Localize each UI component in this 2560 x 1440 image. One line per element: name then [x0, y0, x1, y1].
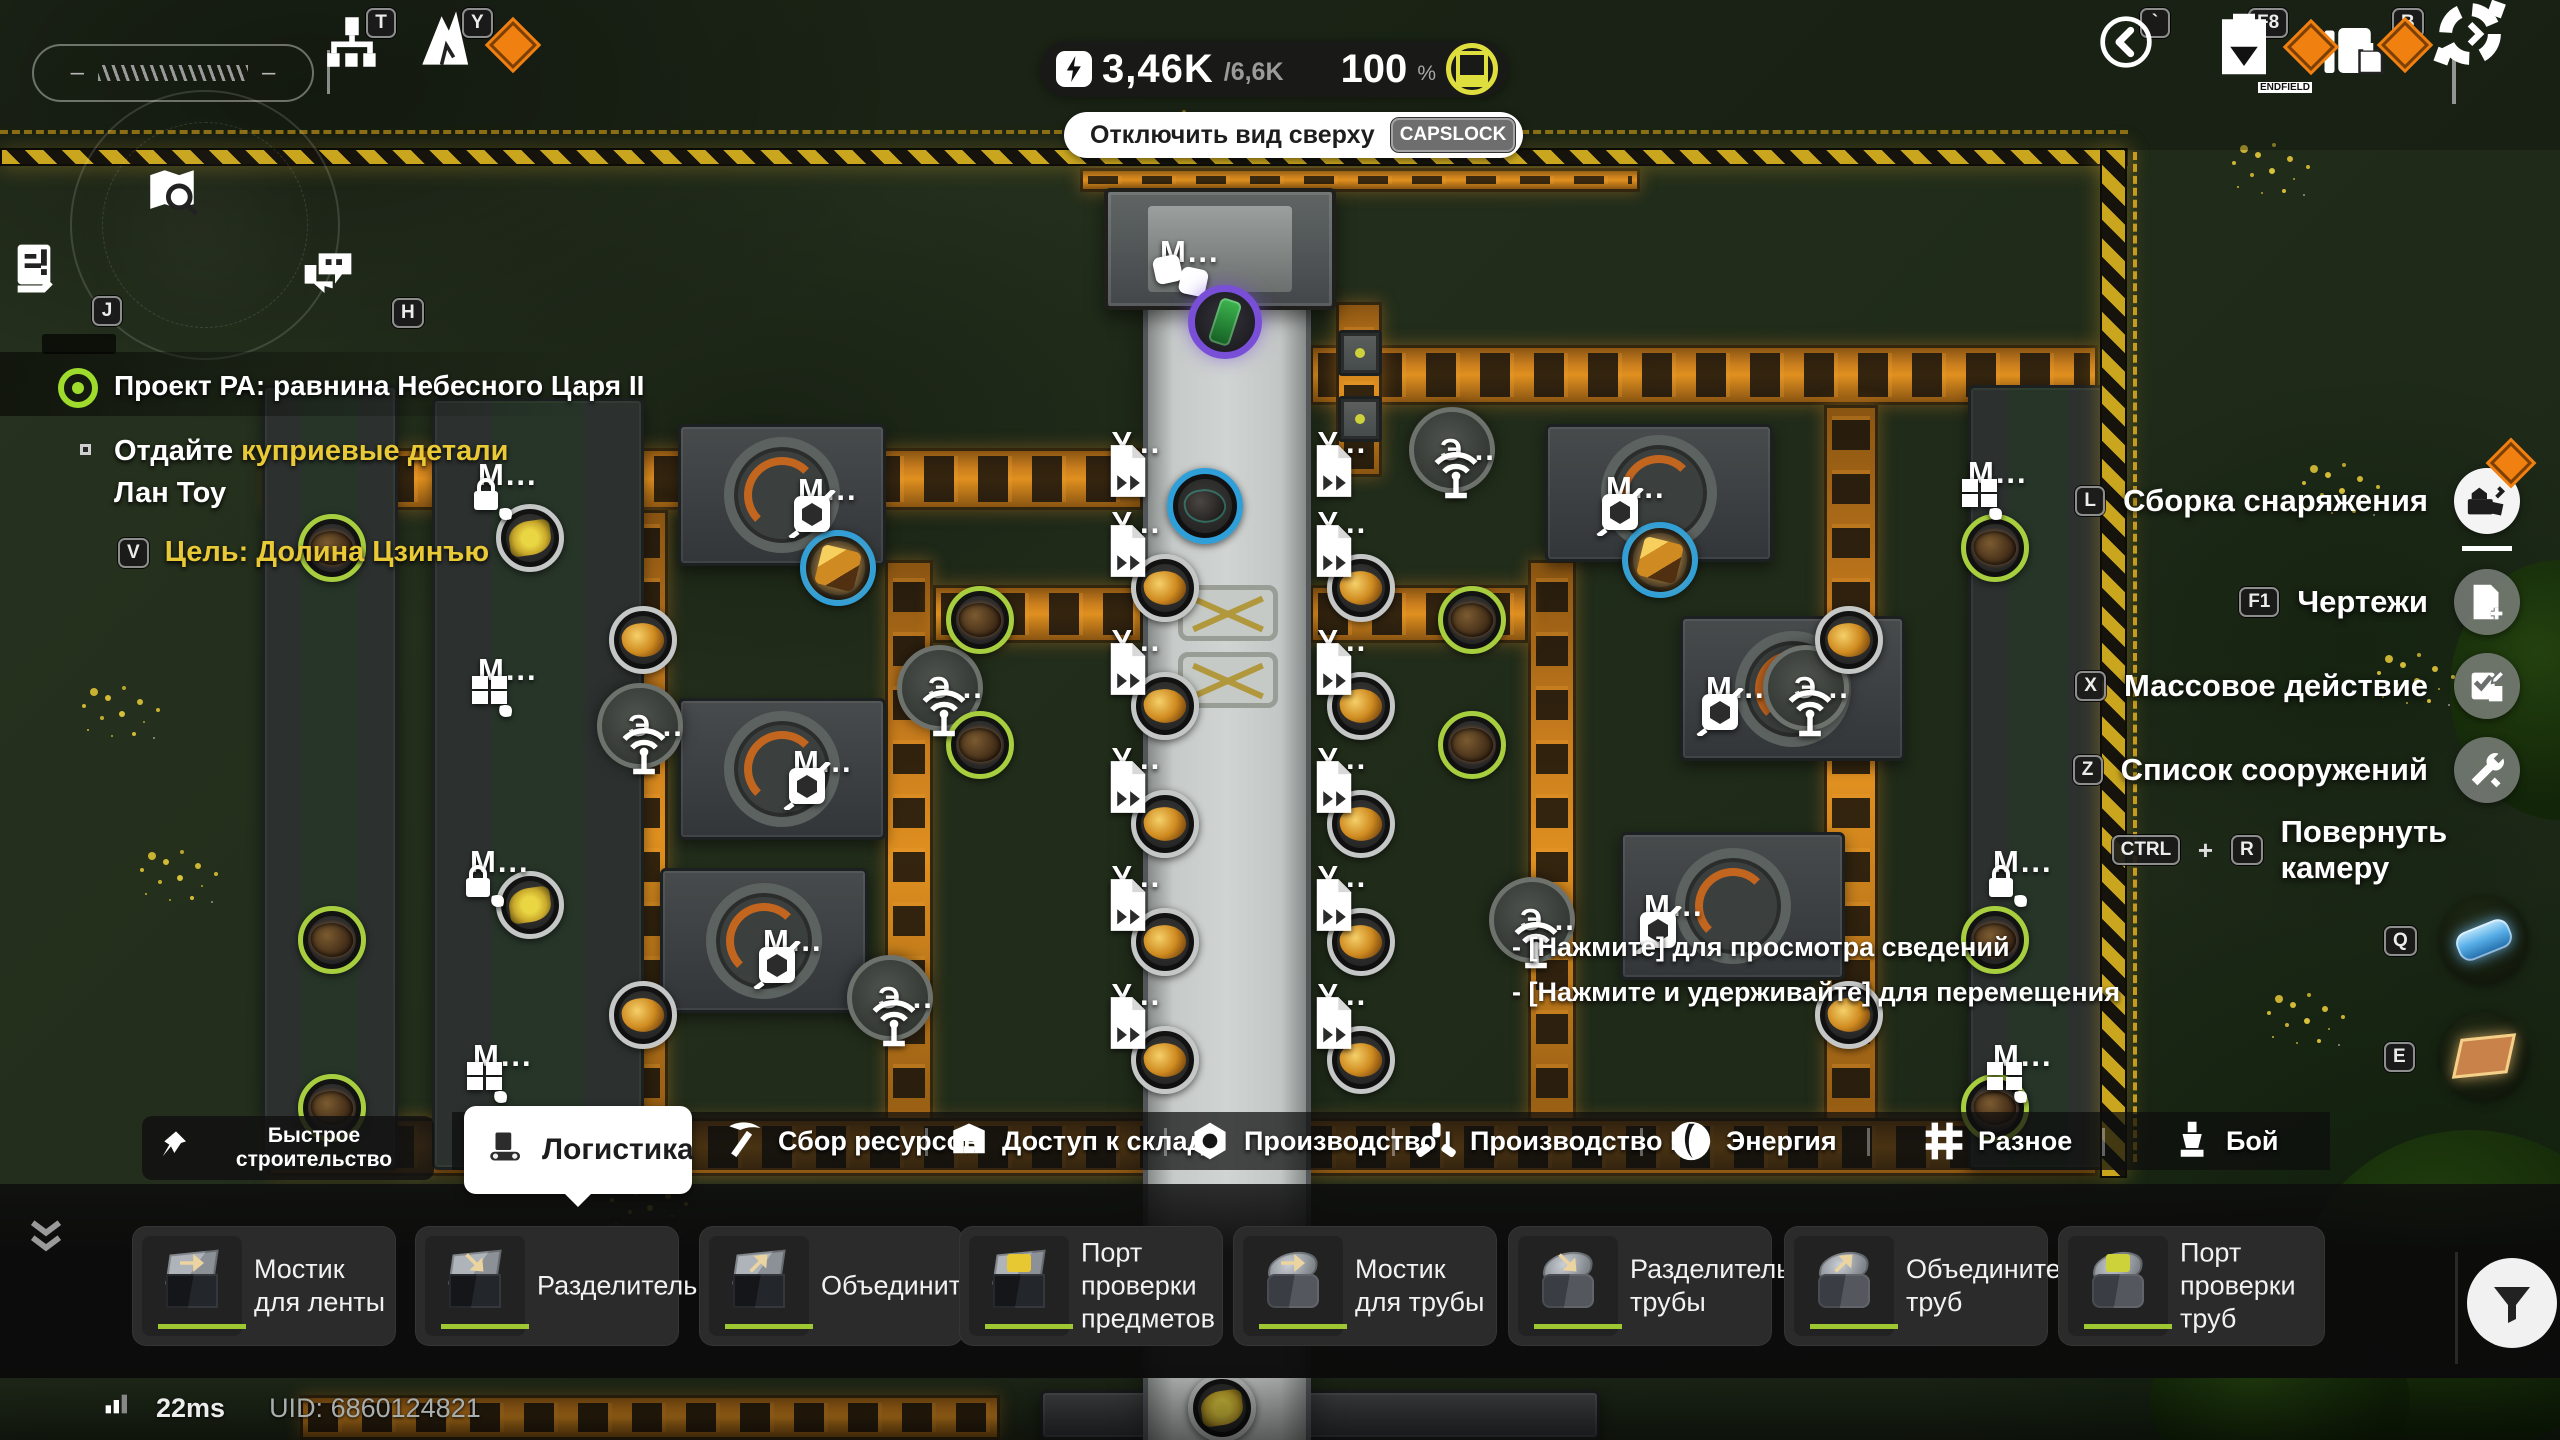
- tab-logistics-label: Логистика: [542, 1133, 694, 1167]
- power-max: /6,6K: [1224, 58, 1284, 87]
- power-percent: 100: [1341, 47, 1408, 92]
- flower-patch: [2385, 655, 2393, 663]
- tooltip-line2: - [Нажмите и удерживайте] для перемещени…: [1512, 977, 2120, 1008]
- flower-patch: [2275, 995, 2283, 1003]
- item-icon-box: [142, 1236, 242, 1336]
- flower-patch: [90, 688, 98, 696]
- tab-production2-label: Производство II: [1470, 1126, 1685, 1157]
- blueprints-label: Чертежи: [2297, 584, 2428, 620]
- chat-hotkey: H: [392, 298, 424, 328]
- production1-icon: [1188, 1119, 1232, 1163]
- resource-slot-flower[interactable]: [1188, 1374, 1256, 1440]
- build-item-pipe-bridge[interactable]: Мостик для трубы: [1233, 1226, 1497, 1346]
- menu-item-blueprints[interactable]: F1 Чертежи: [2239, 584, 2428, 620]
- mission-title: Проект РА: равнина Небесного Царя II: [114, 370, 644, 402]
- item-label: Порт проверки труб: [2180, 1237, 2317, 1336]
- belt-bridge-icon: [164, 1252, 220, 1308]
- boundary-dash-line: [2133, 152, 2137, 1162]
- item-icon-box: [709, 1236, 809, 1336]
- slot-q-button[interactable]: [2440, 896, 2528, 984]
- item-icon-box: [1243, 1236, 1343, 1336]
- conveyor-belt: [1528, 560, 1576, 1160]
- resource-slot-rock[interactable]: [1167, 468, 1243, 544]
- quest-log-hotkey: J: [92, 296, 122, 326]
- building-label[interactable]: М...: [1596, 470, 1666, 506]
- item-icon-box: [969, 1236, 1069, 1336]
- game-screen: М...У...У...У...У...У...У...У...У...У...…: [0, 0, 2560, 1440]
- unlock-bar: [2084, 1324, 2172, 1329]
- building-label[interactable]: М...: [1150, 234, 1220, 270]
- item-icon-box: [2068, 1236, 2168, 1336]
- building-label[interactable]: У...: [1308, 425, 1367, 461]
- item-label: Мостик для трубы: [1355, 1253, 1489, 1319]
- building-label[interactable]: М...: [783, 744, 853, 780]
- building-label[interactable]: У...: [1308, 977, 1367, 1013]
- assemble-label: Сборка снаряжения: [2123, 483, 2428, 519]
- tab-storage[interactable]: Доступ к складу: [948, 1118, 1220, 1164]
- item-icon-box: [1518, 1236, 1618, 1336]
- tab-logistics[interactable]: Логистика: [464, 1106, 692, 1194]
- build-item-pipe-check-port[interactable]: Порт проверки труб: [2058, 1226, 2325, 1346]
- building-label[interactable]: Э...: [868, 980, 934, 1016]
- structure-list-label: Список сооружений: [2121, 752, 2428, 788]
- item-label: Разделитель трубы: [1630, 1253, 1764, 1319]
- mission-objective: Отдайте куприевые детали Лан Тоу: [114, 430, 674, 514]
- pipe-merger-icon: [1816, 1252, 1872, 1308]
- warehouse-icon: [948, 1120, 990, 1162]
- tooltip-line1: - [Нажмите] для просмотра сведений: [1512, 932, 2010, 963]
- building-label[interactable]: У...: [1308, 859, 1367, 895]
- mass-action-hotkey: X: [2075, 671, 2106, 701]
- uid-value: UID: 6860124821: [269, 1393, 481, 1424]
- item-icon-box: [425, 1236, 525, 1336]
- tab-resources[interactable]: Сбор ресурсов: [722, 1118, 980, 1164]
- structure-list-hotkey: Z: [2073, 755, 2103, 785]
- building-label[interactable]: У...: [1308, 505, 1367, 541]
- tab-combat-label: Бой: [2226, 1126, 2279, 1157]
- building-label[interactable]: Э...: [618, 708, 684, 744]
- build-item-item-check-port[interactable]: Порт проверки предметов: [959, 1226, 1223, 1346]
- building-label[interactable]: М...: [460, 844, 530, 880]
- resource-slot-brown[interactable]: [946, 586, 1014, 654]
- rotate-camera-plus: +: [2198, 835, 2213, 866]
- top-view-label: Отключить вид сверху: [1090, 121, 1375, 150]
- building-label[interactable]: У...: [1308, 741, 1367, 777]
- building-label[interactable]: М...: [753, 923, 823, 959]
- mass-action-button[interactable]: [2454, 653, 2520, 719]
- item-label: Объединитель труб: [1906, 1253, 2040, 1319]
- rotate-camera-label: Повернуть камеру: [2281, 814, 2560, 886]
- machine-dev[interactable]: [1338, 330, 1382, 376]
- resource-slot-gold[interactable]: [609, 606, 677, 674]
- tab-misc[interactable]: Разное: [1922, 1118, 2072, 1164]
- resource-slot-brown[interactable]: [298, 906, 366, 974]
- assemble-underline: [2462, 546, 2512, 551]
- unlock-bar: [1259, 1324, 1347, 1329]
- goal-hotkey: V: [118, 538, 149, 568]
- build-item-belt-bridge[interactable]: Мостик для ленты: [132, 1226, 396, 1346]
- rotate-camera-hotkey2: R: [2231, 835, 2263, 865]
- building-label[interactable]: У...: [1102, 741, 1161, 777]
- unlock-bar: [1810, 1324, 1898, 1329]
- gauge-dash-left: –: [71, 59, 84, 87]
- power-icon: [1056, 51, 1092, 87]
- tab-divider: [925, 1128, 928, 1156]
- menu-item-assemble[interactable]: L Сборка снаряжения: [2075, 483, 2428, 519]
- quick-build-line2: строительство: [236, 1148, 392, 1171]
- filter-divider: [2455, 1252, 2458, 1364]
- unlock-bar: [158, 1324, 246, 1329]
- tab-divider: [1640, 1128, 1643, 1156]
- building-label[interactable]: У...: [1308, 623, 1367, 659]
- building-label[interactable]: М...: [1696, 670, 1766, 706]
- item-label: Объединитель: [821, 1270, 955, 1303]
- hazard-border: [2100, 148, 2127, 1178]
- building-label[interactable]: М...: [1634, 888, 1704, 924]
- blueprints-hotkey: F1: [2239, 587, 2279, 617]
- filter-button[interactable]: [2467, 1258, 2557, 1348]
- combat-icon: [2172, 1118, 2214, 1164]
- building-label[interactable]: У...: [1102, 505, 1161, 541]
- machine-plain[interactable]: [1040, 1390, 1600, 1440]
- mass-action-label: Массовое действие: [2124, 668, 2428, 704]
- power-current: 3,46K: [1102, 47, 1214, 92]
- signal-icon: [100, 1392, 138, 1424]
- resource-slot-goldcube[interactable]: [800, 530, 876, 606]
- structure-list-button[interactable]: [2454, 737, 2520, 803]
- pickaxe-icon: [722, 1119, 766, 1163]
- building-label[interactable]: У...: [1102, 623, 1161, 659]
- unlock-bar: [985, 1324, 1073, 1329]
- build-item-pipe-merger[interactable]: Объединитель труб: [1784, 1226, 2048, 1346]
- item-label: Мостик для ленты: [254, 1253, 388, 1319]
- flower-patch: [148, 852, 156, 860]
- unlock-bar: [725, 1324, 813, 1329]
- top-view-hotkey: CAPSLOCK: [1391, 118, 1516, 152]
- building-label[interactable]: Э...: [918, 670, 984, 706]
- splitter-icon: [447, 1252, 503, 1308]
- status-bar: 22ms UID: 6860124821: [100, 1392, 481, 1424]
- pipe-bridge-icon: [1265, 1252, 1321, 1308]
- building-label[interactable]: У...: [1102, 425, 1161, 461]
- gauge-hatch: [98, 65, 248, 81]
- tab-divider: [1164, 1128, 1167, 1156]
- funnel-icon: [2488, 1279, 2536, 1327]
- flower-patch: [2310, 465, 2318, 473]
- build-item-pipe-splitter[interactable]: Разделитель трубы: [1508, 1226, 1772, 1346]
- assemble-hotkey: L: [2075, 486, 2105, 516]
- slot-q-hotkey: Q: [2384, 926, 2417, 956]
- building-label[interactable]: У...: [1102, 859, 1161, 895]
- gauge-dash-right: –: [262, 59, 275, 87]
- resource-slot-brown[interactable]: [1961, 514, 2029, 582]
- top-view-toggle[interactable]: Отключить вид сверху CAPSLOCK: [1064, 112, 1523, 158]
- resource-slot-brown[interactable]: [1438, 586, 1506, 654]
- tab-production2[interactable]: Производство II: [1414, 1118, 1685, 1164]
- resource-slot-gold[interactable]: [1815, 606, 1883, 674]
- conveyor-icon: [482, 1129, 530, 1171]
- battery-icon: [1446, 43, 1498, 95]
- menu-item-rotate-camera: CTRL + R Повернуть камеру: [2112, 814, 2560, 886]
- objective-highlight: куприевые детали: [233, 435, 508, 467]
- merger-icon: [731, 1252, 787, 1308]
- foundation-item: [2452, 1033, 2516, 1078]
- energy-icon: [1668, 1118, 1714, 1164]
- machine-smelt[interactable]: [678, 698, 886, 840]
- item-icon-box: [1794, 1236, 1894, 1336]
- flower-patch: [2240, 145, 2248, 153]
- building-label[interactable]: Э...: [1430, 432, 1496, 468]
- tab-combat[interactable]: Бой: [2172, 1118, 2279, 1164]
- building-label[interactable]: М...: [788, 472, 858, 508]
- building-label[interactable]: М...: [1983, 1038, 2053, 1074]
- objective-text: Отдайте: [114, 435, 233, 467]
- battery-cell-item: [2452, 916, 2515, 965]
- power-percent-unit: %: [1417, 62, 1436, 86]
- tab-divider: [2102, 1128, 2105, 1156]
- building-label[interactable]: Э...: [1784, 670, 1850, 706]
- tab-divider: [1392, 1128, 1395, 1156]
- production2-icon: [1414, 1119, 1458, 1163]
- menu-item-mass-action[interactable]: X Массовое действие: [2075, 668, 2428, 704]
- objective-line2: Лан Тоу: [114, 477, 226, 509]
- resource-slot-gold[interactable]: [609, 981, 677, 1049]
- item-label: Разделитель: [537, 1270, 671, 1303]
- tab-production1[interactable]: Производство I: [1188, 1118, 1452, 1164]
- unlock-bar: [441, 1324, 529, 1329]
- blueprint-icon-text: ENDFIELD: [2258, 82, 2312, 93]
- build-item-merger[interactable]: Объединитель: [699, 1226, 963, 1346]
- tab-divider: [1867, 1128, 1870, 1156]
- tab-energy[interactable]: Энергия: [1668, 1118, 1837, 1164]
- goal-text: Цель: Долина Цзинъю: [165, 536, 489, 569]
- building-label[interactable]: М...: [468, 652, 538, 688]
- resource-slot-brown[interactable]: [1438, 711, 1506, 779]
- pipe-check-port-icon: [2090, 1252, 2146, 1308]
- objective-bullet: [80, 444, 91, 455]
- mission-tracker-icon: [58, 368, 98, 408]
- rotate-camera-hotkey1: CTRL: [2112, 835, 2180, 865]
- tab-misc-label: Разное: [1978, 1126, 2072, 1157]
- menu-item-structure-list[interactable]: Z Список сооружений: [2073, 752, 2428, 788]
- tab-energy-label: Энергия: [1726, 1126, 1837, 1157]
- slot-e-button[interactable]: [2440, 1012, 2528, 1100]
- pipe-splitter-icon: [1540, 1252, 1596, 1308]
- quick-build-line1: Быстрое: [268, 1124, 360, 1147]
- quick-build-button[interactable]: Быстроестроительство: [142, 1116, 434, 1180]
- blueprints-button[interactable]: [2454, 569, 2520, 635]
- build-item-splitter[interactable]: Разделитель: [415, 1226, 679, 1346]
- building-label[interactable]: М...: [1983, 844, 2053, 880]
- building-label[interactable]: М...: [463, 1038, 533, 1074]
- quest-log-badge: [42, 334, 116, 354]
- pin-icon: [156, 1128, 196, 1168]
- slot-e-hotkey: E: [2384, 1042, 2415, 1072]
- building-label[interactable]: М...: [1958, 455, 2028, 491]
- ping-value: 22ms: [156, 1393, 225, 1424]
- durability-gauge: – –: [32, 44, 314, 102]
- building-label[interactable]: У...: [1102, 977, 1161, 1013]
- player-marker[interactable]: [1188, 285, 1262, 359]
- unlock-bar: [1534, 1324, 1622, 1329]
- item-check-port-icon: [991, 1252, 1047, 1308]
- misc-icon: [1922, 1119, 1966, 1163]
- item-label: Порт проверки предметов: [1081, 1237, 1215, 1336]
- mission-goal-row[interactable]: V Цель: Долина Цзинъю: [118, 536, 489, 569]
- power-bar: 3,46K /6,6K 100 %: [1040, 41, 1508, 97]
